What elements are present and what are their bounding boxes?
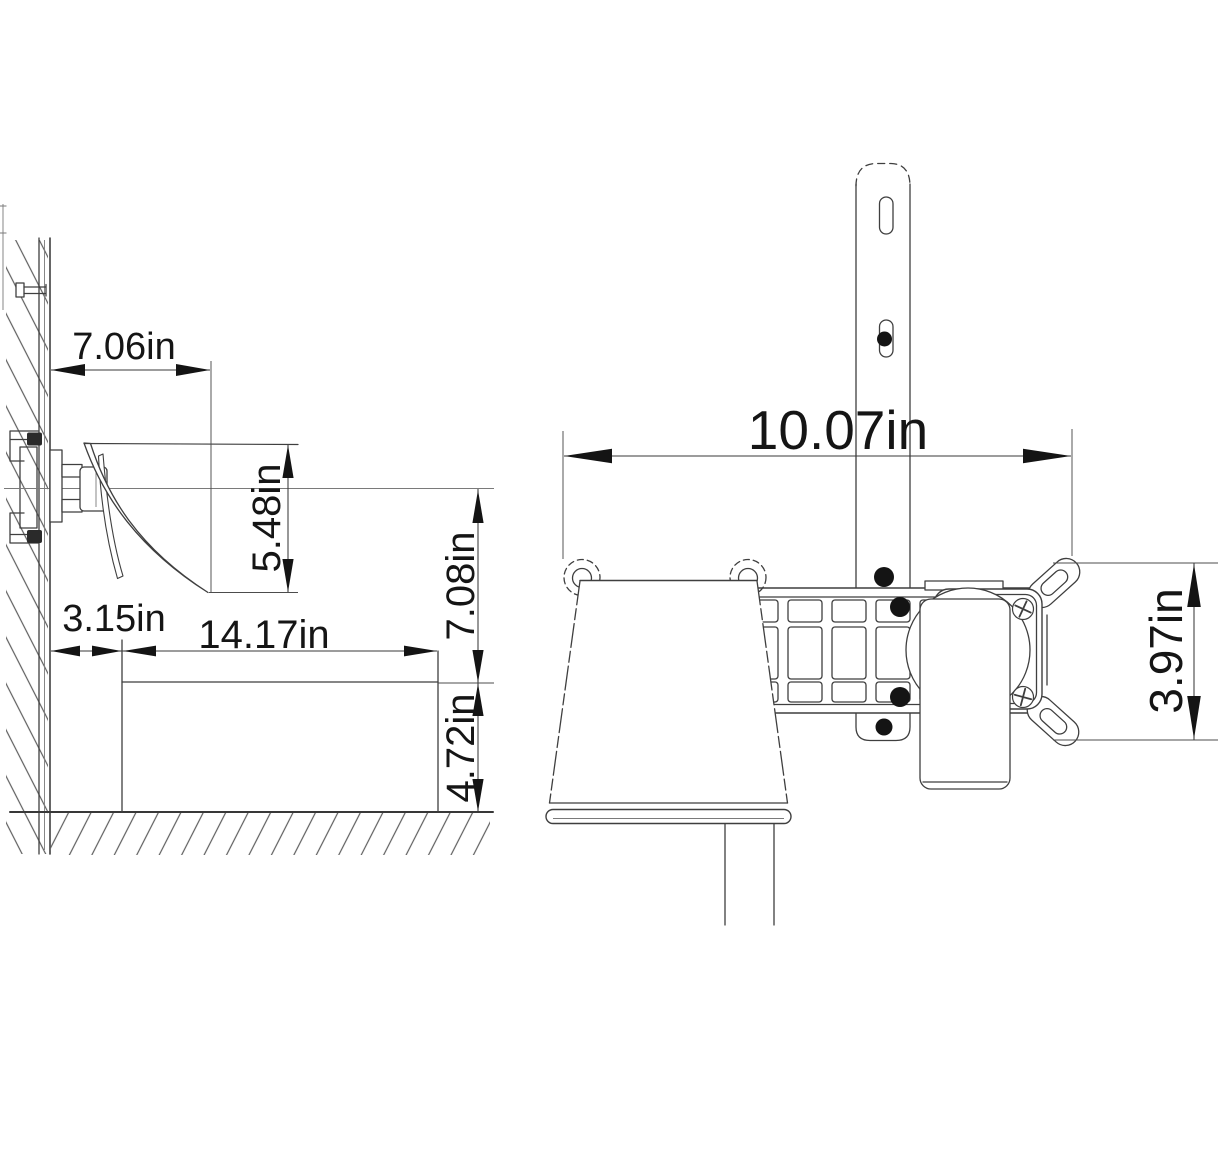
arrowhead-left-icon: [123, 646, 156, 657]
spout-top-edge: [84, 444, 298, 445]
arrowhead-right-icon: [176, 364, 210, 376]
lower-connector-arm: [62, 500, 82, 513]
dim-deck-height-label: 4.72in: [439, 694, 483, 803]
wall-escutcheon-plate: [50, 450, 62, 522]
drawing-svg: 7.06in 3.15in 14.17in 5.48in 7.08in: [0, 0, 1229, 1150]
trim-screw-bottom: [1013, 687, 1034, 708]
upper-clamp-bolt: [27, 433, 42, 446]
wall-section: [6, 238, 50, 854]
floor-section: [10, 812, 493, 855]
bracket-fill: [856, 180, 910, 588]
dim-outlet-height-label: 7.08in: [439, 532, 483, 641]
supply-stem: [725, 824, 774, 925]
floor-hatch: [50, 813, 490, 855]
dimension-overall-width: 10.07in: [564, 399, 1071, 463]
dim-overall-width-label: 10.07in: [748, 399, 928, 461]
spout-lip: [546, 810, 791, 824]
dim-spout-projection-label: 7.06in: [72, 326, 176, 368]
bracket-slot-top: [880, 197, 894, 234]
upper-connector-arm: [62, 465, 82, 478]
dimension-wall-clearance-and-deck-width: 3.15in 14.17in: [51, 598, 437, 657]
arrowhead-right-icon: [1023, 449, 1071, 463]
arrowhead-up-icon: [472, 490, 483, 523]
bracket-bolt-dot: [877, 332, 892, 347]
arrowhead-left-icon: [51, 646, 80, 657]
vanity-counter: [122, 640, 438, 812]
dim-spout-drop-label: 5.48in: [245, 464, 289, 573]
arrowhead-right-icon: [404, 646, 437, 657]
lower-clamp-bolt: [27, 530, 42, 543]
waterfall-spout-front: [546, 560, 791, 926]
dimension-spout-drop: 5.48in: [245, 445, 294, 592]
spout-face-fill: [550, 581, 788, 804]
in-wall-pipe-line: [0, 204, 7, 310]
installation-dimension-drawing: 7.06in 3.15in 14.17in 5.48in 7.08in: [0, 0, 1229, 1150]
dim-trim-height-label: 3.97in: [1140, 588, 1192, 713]
anchor-bolt-head: [16, 283, 24, 297]
dimension-outlet-and-deck-height: 7.08in 4.72in: [439, 489, 484, 812]
dim-wall-clearance-label: 3.15in: [62, 598, 166, 640]
handle-cover: [920, 599, 1010, 789]
arrowhead-down-icon: [472, 650, 483, 683]
arrowhead-left-icon: [564, 449, 612, 463]
side-view-drawing: 7.06in 3.15in 14.17in 5.48in 7.08in: [0, 204, 494, 855]
arrowhead-right-icon: [92, 646, 122, 657]
dim-deck-width-label: 14.17in: [198, 613, 329, 657]
dimension-spout-projection: 7.06in: [51, 326, 210, 376]
wall-hatch: [6, 240, 48, 854]
dimension-trim-height: 3.97in: [1140, 563, 1201, 740]
front-view-drawing: 10.07in 3.97in: [546, 164, 1218, 926]
